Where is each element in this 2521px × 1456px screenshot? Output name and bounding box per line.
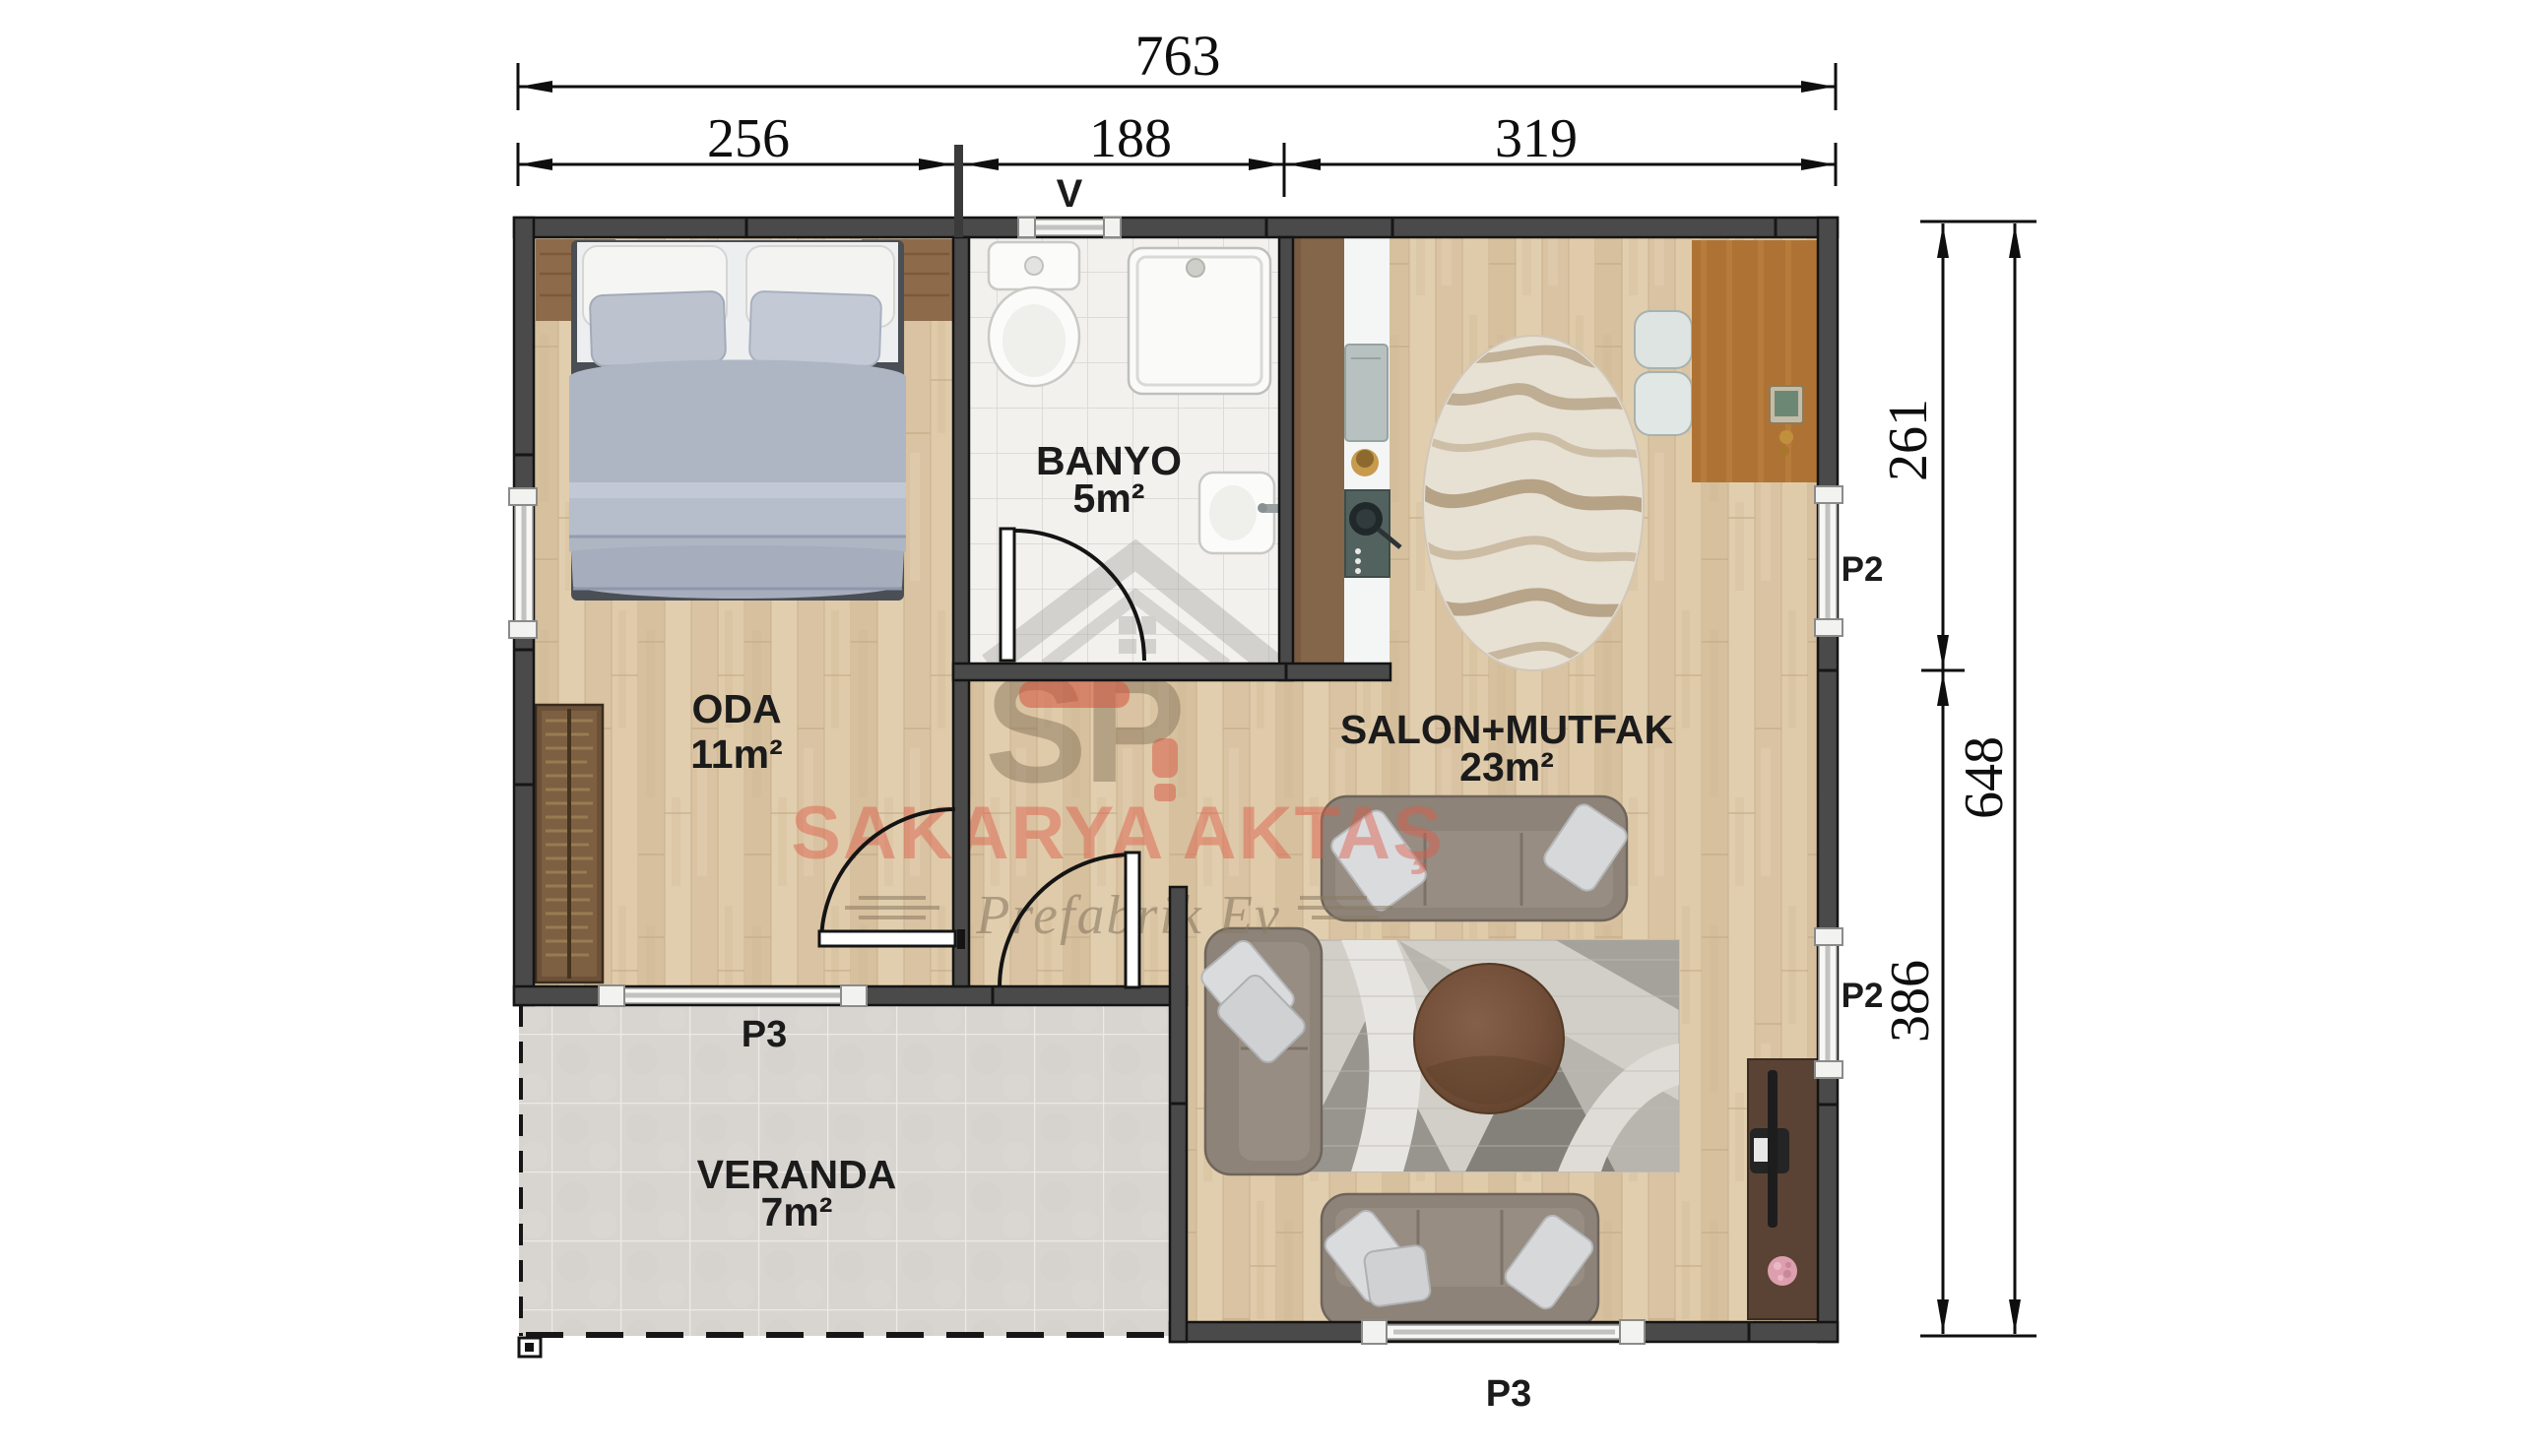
svg-text:319: 319 [1495,108,1578,169]
svg-text:188: 188 [1089,108,1172,169]
svg-text:7m²: 7m² [761,1189,833,1234]
svg-text:P3: P3 [1486,1373,1531,1415]
svg-text:P3: P3 [742,1014,787,1055]
svg-text:256: 256 [707,108,790,169]
svg-text:261: 261 [1878,399,1939,481]
svg-text:V: V [1057,172,1083,216]
svg-text:P2: P2 [1842,977,1884,1015]
svg-text:P2: P2 [1842,550,1884,589]
svg-text:23m²: 23m² [1459,744,1554,790]
svg-text:SAKARYA AKTAŞ: SAKARYA AKTAŞ [791,791,1445,875]
svg-text:5m²: 5m² [1073,475,1145,521]
svg-text:763: 763 [1135,24,1221,88]
svg-text:648: 648 [1954,736,2015,819]
svg-text:ODA: ODA [691,686,781,731]
svg-text:386: 386 [1880,960,1941,1043]
svg-text:11m²: 11m² [690,731,782,777]
